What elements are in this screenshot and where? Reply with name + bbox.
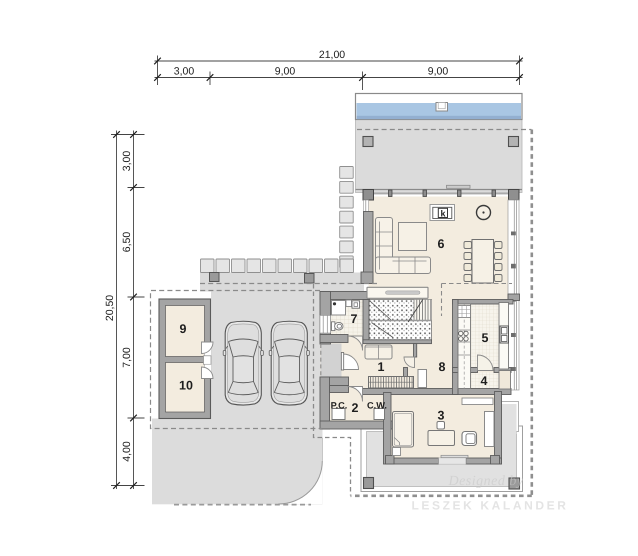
svg-text:5: 5 [482, 331, 489, 345]
svg-text:LESZEK KALANDER: LESZEK KALANDER [411, 499, 568, 513]
svg-text:3,00: 3,00 [174, 66, 195, 78]
svg-text:6,50: 6,50 [121, 232, 133, 253]
svg-text:2: 2 [352, 401, 359, 415]
svg-text:P.C.: P.C. [331, 400, 348, 410]
svg-text:7: 7 [351, 312, 358, 326]
svg-text:9,00: 9,00 [428, 66, 449, 78]
svg-text:6: 6 [438, 237, 445, 251]
svg-text:21,00: 21,00 [319, 49, 345, 61]
svg-text:1: 1 [378, 360, 385, 374]
svg-text:7,00: 7,00 [121, 347, 133, 368]
svg-text:4: 4 [481, 374, 488, 388]
svg-text:Designed by: Designed by [447, 474, 523, 489]
svg-text:C.W.: C.W. [367, 400, 387, 410]
svg-text:9,00: 9,00 [275, 66, 296, 78]
svg-text:20,50: 20,50 [104, 295, 116, 321]
svg-text:9: 9 [180, 322, 187, 336]
svg-text:3,00: 3,00 [121, 151, 133, 172]
svg-text:8: 8 [439, 360, 446, 374]
svg-text:10: 10 [179, 379, 193, 393]
svg-text:3: 3 [438, 409, 445, 423]
svg-text:4,00: 4,00 [121, 441, 133, 462]
